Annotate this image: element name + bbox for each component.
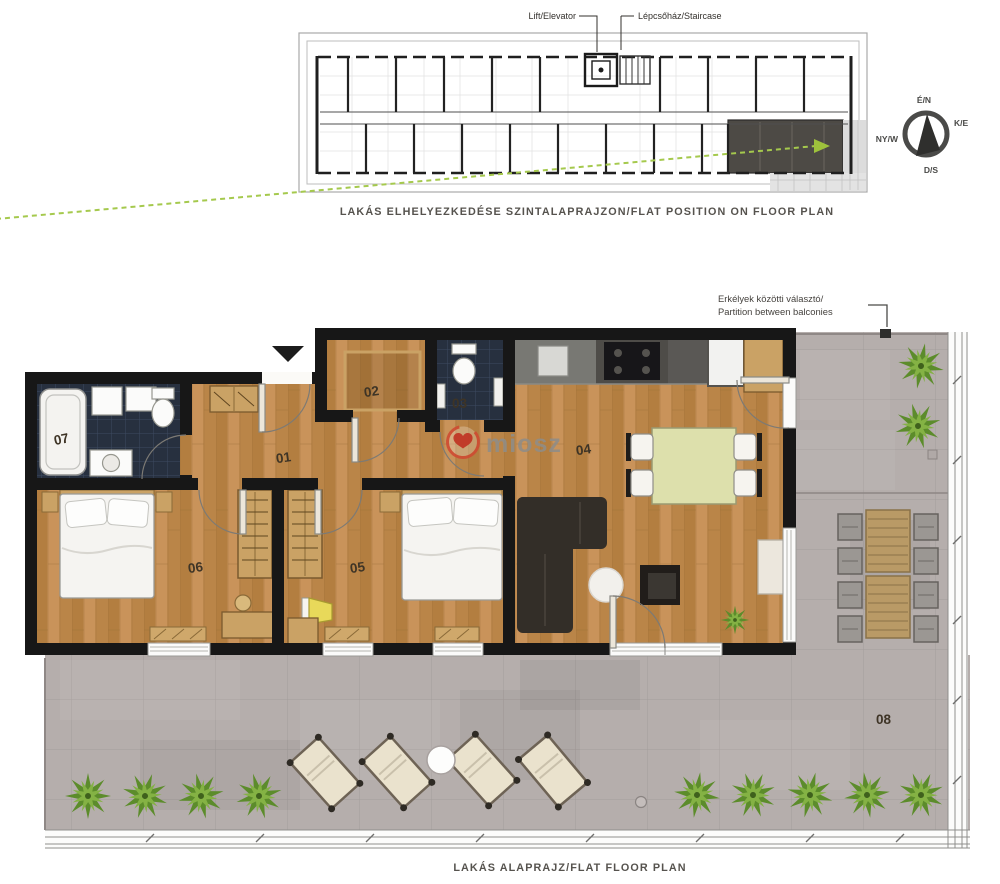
floor-plan-canvas: Lift/Elevator Lépcsőház/Staircase É/N K/… (0, 0, 1000, 884)
tall-cabinet (758, 540, 784, 594)
toilet-icon (452, 344, 476, 384)
terrace-drain-dot (636, 797, 647, 808)
double-bed (402, 490, 502, 600)
room-label-living: 04 (575, 441, 592, 458)
window (783, 528, 796, 642)
floor-plan-page: Lift/Elevator Lépcsőház/Staircase É/N K/… (0, 0, 1000, 884)
window (323, 643, 373, 656)
watermark-text: miosz (486, 430, 562, 458)
hall-wardrobe (210, 386, 258, 412)
compass-south: D/S (924, 165, 939, 175)
kitchen-cabinet (744, 338, 783, 392)
terrace-side-table (427, 746, 455, 774)
room-label-02: 02 (363, 383, 380, 400)
room-label-bedroom-06: 06 (187, 559, 204, 576)
room-label-bedroom-05: 05 (349, 559, 366, 576)
entrance-arrow (272, 346, 304, 362)
terrace-drain-box (928, 450, 937, 459)
fridge (708, 338, 744, 386)
room-label-wc: 03 (452, 396, 468, 411)
compass: É/N K/E D/S NY/W (876, 95, 969, 175)
wc-sink (437, 384, 445, 408)
kitchen-sink (538, 346, 568, 376)
wc-shelf (494, 378, 503, 406)
entrance-threshold (262, 372, 312, 384)
compass-north: É/N (917, 95, 931, 105)
closet-02 (345, 352, 420, 410)
terrace-glass-door (610, 643, 722, 656)
round-rug (589, 568, 623, 602)
washing-machine (92, 387, 122, 415)
balcony-partition-note: Erkélyek közötti választó/ Partition bet… (718, 293, 887, 327)
bathroom-sink (90, 450, 132, 476)
indoor-plant (721, 606, 750, 635)
overview-plan: Lift/Elevator Lépcsőház/Staircase (299, 11, 867, 192)
double-bed (60, 490, 154, 598)
kitchen-counter (513, 338, 708, 384)
compass-west: NY/W (876, 134, 899, 144)
balcony-note-line2: Partition between balconies (718, 306, 833, 317)
balcony-note-line1: Erkélyek közötti választó/ (718, 293, 824, 304)
balcony-partition (880, 329, 891, 338)
small-desk (288, 618, 318, 644)
compass-east: K/E (954, 118, 969, 128)
staircase-label: Lépcsőház/Staircase (638, 11, 722, 21)
flat-plan-caption: LAKÁS ALAPRAJZ/FLAT FLOOR PLAN (453, 861, 686, 874)
window (148, 643, 210, 656)
dining-table (652, 428, 736, 504)
lift-label: Lift/Elevator (528, 11, 576, 21)
room-label-bathroom: 07 (52, 430, 70, 448)
overview-caption: LAKÁS ELHELYEZKEDÉSE SZINTALAPRAJZON/FLA… (340, 205, 834, 218)
tv-unit (640, 565, 680, 605)
balcony-door (783, 378, 796, 428)
room-label-hall: 01 (275, 449, 292, 466)
toilet-icon (152, 388, 174, 427)
window (433, 643, 483, 656)
room-label-terrace: 08 (876, 712, 892, 727)
